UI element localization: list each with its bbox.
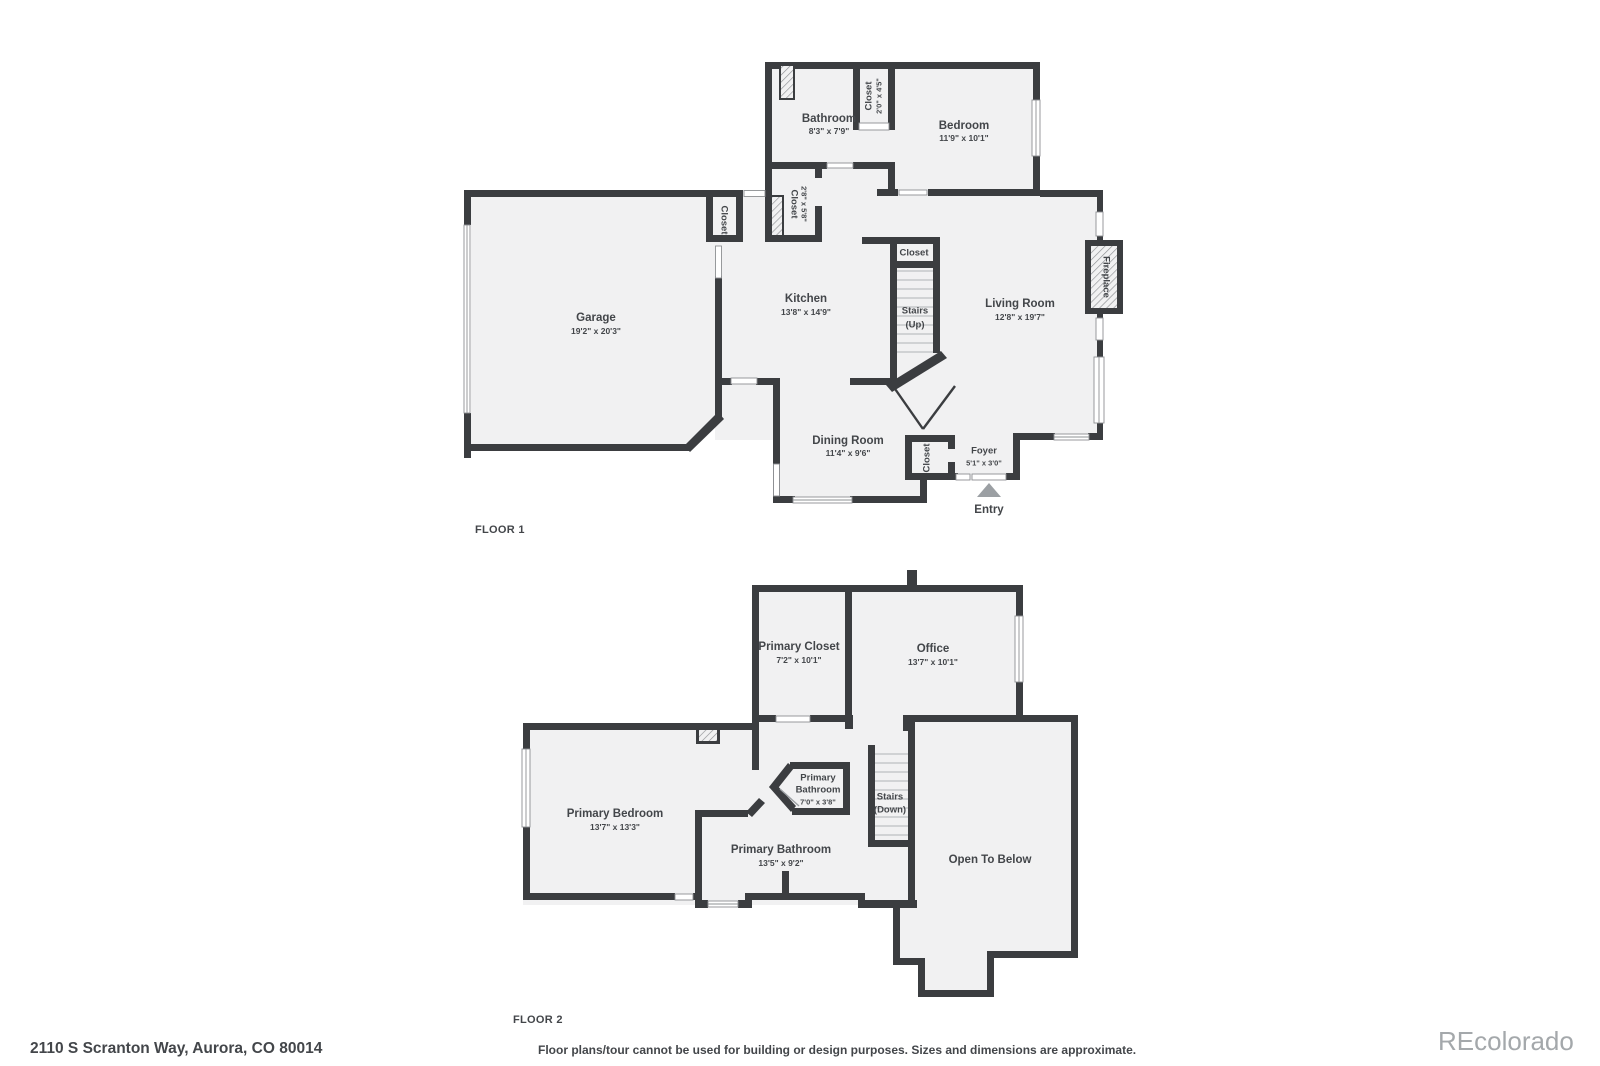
bedroom-dims: 11'9" x 10'1" [939,133,988,143]
kitchen-label: Kitchen [785,293,827,305]
primary-bedroom-window [522,749,530,827]
closet-bath-dims: 2'0" x 4'5" [875,78,884,114]
living-bottom-window [1054,434,1089,440]
floor2-title: FLOOR 2 [513,1014,563,1026]
primary-bathroom-dims: 13'5" x 9'2" [758,858,803,868]
closet-hall-label: Closet [789,189,800,219]
garage-door [464,225,470,413]
foyer-label: Foyer [971,446,997,457]
bedroom-label: Bedroom [939,120,989,132]
entry-opening [972,474,1006,480]
primary-closet-label: Primary Closet [758,641,839,653]
primary-bathroom-small-dims: 7'0" x 3'8" [800,798,836,807]
bathroom-label: Bathroom [802,113,856,125]
office-dims: 13'7" x 10'1" [908,657,958,667]
fireplace: Fireplace [1085,240,1123,314]
dining-room-dims: 11'4" x 9'6" [826,448,871,458]
living-window-2 [1096,318,1103,340]
primary-closet-dims: 7'2" x 10'1" [776,655,821,665]
bedroom-window [1032,100,1040,156]
primary-bedroom-dims: 13'7" x 13'3" [590,822,640,832]
dining-bottom-window [793,497,852,503]
foyer-dims: 5'1" x 3'0" [966,459,1002,468]
stairs-down-label-1: Stairs [877,792,903,803]
closet-foyer-label: Closet [922,443,933,473]
floor2-plan: Primary Closet 7'2" x 10'1" Office 13'7"… [513,570,1078,1026]
primary-bedroom-label: Primary Bedroom [567,808,664,820]
primary-bedroom-bottom-window [675,894,693,900]
stairs-up-label-1: Stairs [902,306,928,317]
kitchen-window [731,378,757,384]
office-window [1015,616,1023,682]
stairs-down-label-2: (Down) [874,805,906,816]
closet-garage-label: Closet [719,205,730,235]
living-slider-window [1094,357,1104,423]
primary-bathroom-label: Primary Bathroom [731,844,831,856]
entry-arrow-icon [977,483,1001,497]
property-address: 2110 S Scranton Way, Aurora, CO 80014 [30,1040,322,1058]
primary-bathroom-small-label-2: Bathroom [796,785,841,796]
bathroom-closet-door [859,123,889,130]
primary-bathroom-small-label-1: Primary [800,773,836,784]
closet-bath-label: Closet [864,81,875,111]
garage-label: Garage [576,312,616,324]
primary-closet-door [776,716,810,722]
floor-plan-page: Fireplace Garage 19'2" x 20'3" Kitchen 1… [0,0,1600,1066]
bathroom-door [827,163,853,168]
office-label: Office [917,643,950,655]
closet-hall-dims: 2'8" x 5'8" [800,186,809,222]
fireplace-label: Fireplace [1101,256,1112,298]
dining-room-label: Dining Room [812,435,884,447]
floor-plan-drawing: Fireplace Garage 19'2" x 20'3" Kitchen 1… [0,0,1600,1066]
floor1-plan: Fireplace Garage 19'2" x 20'3" Kitchen 1… [464,62,1123,536]
disclaimer-text: Floor plans/tour cannot be used for buil… [538,1043,1136,1057]
kitchen-dims: 13'8" x 14'9" [781,307,831,317]
open-to-below-label: Open To Below [949,854,1032,866]
garage-kitchen-door [716,246,722,278]
bathroom-dims: 8'3" x 7'9" [809,126,849,136]
floor1-title: FLOOR 1 [475,524,525,536]
stairs-up-label-2: (Up) [906,320,925,331]
foyer-door [956,474,970,480]
primary-bathroom-window [708,901,738,907]
bedroom-door [899,190,927,195]
garage-dims: 19'2" x 20'3" [571,326,621,336]
closet-stairs-label: Closet [899,248,929,259]
living-window-1 [1096,212,1103,236]
entry-label: Entry [974,504,1004,516]
living-room-dims: 12'8" x 19'7" [995,312,1045,322]
living-room-label: Living Room [985,298,1055,310]
recolorado-watermark: REcolorado [1438,1026,1574,1057]
dining-left-window [774,464,780,496]
kitchen-side-door [744,191,765,197]
floor1-room-fills [471,62,1103,503]
